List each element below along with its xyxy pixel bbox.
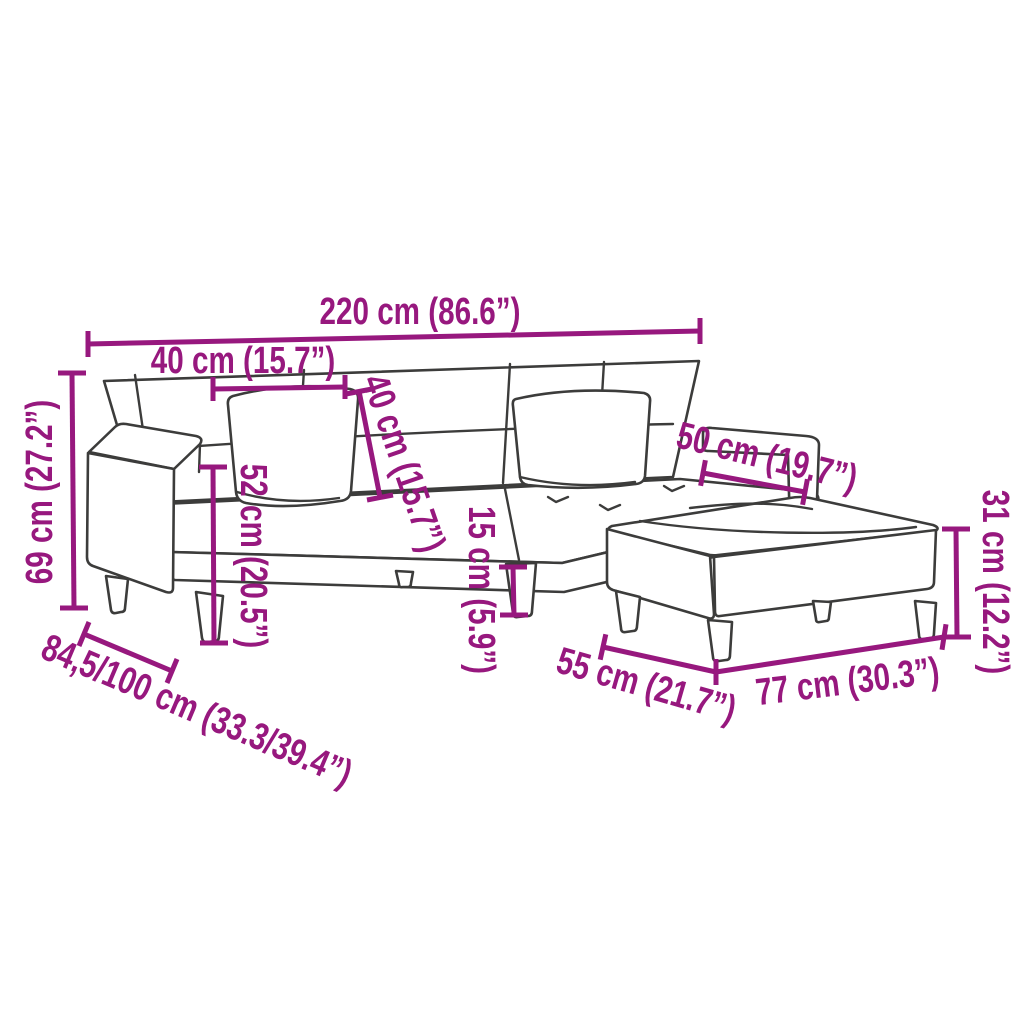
dimension-diagram: 220 cm (86.6”) 40 cm (15.7”) 40 cm (15.7… [0,0,1024,1024]
left-armrest-front-leg [196,592,223,642]
diagram-canvas: 220 cm (86.6”) 40 cm (15.7”) 40 cm (15.7… [0,0,1024,1024]
dimension-line [72,373,74,608]
dimension-depth-min-max: 84,5/100 cm (33.3/39.4”) [35,622,358,795]
dimension-label: 84,5/100 cm (33.3/39.4”) [35,626,358,795]
dimension-label: 15 cm (5.9”) [460,506,502,674]
dimension-overall-height: 69 cm (27.2”) [19,373,88,608]
dimension-label: 40 cm (15.7”) [151,340,335,382]
dimension-line [213,467,214,643]
back-cushion-right [513,391,650,488]
dimension-label: 52 cm (20.5”) [232,464,274,648]
footstool [607,497,938,661]
left-armrest-back-leg [106,576,128,613]
dimension-tick [942,624,946,650]
dimension-footstool-height: 31 cm (12.2”) [942,490,1016,674]
footstool-leg [915,601,936,639]
dimension-line [213,387,345,389]
dimension-line [513,567,514,615]
dimension-label: 31 cm (12.2”) [974,490,1016,674]
sofa-back-leg [396,571,413,587]
footstool-leg [813,601,831,622]
dimension-label: 220 cm (86.6”) [320,291,521,333]
footstool-leg [616,591,640,632]
dimension-label: 69 cm (27.2”) [19,400,61,584]
left-armrest-front [87,453,174,593]
dimension-line [956,529,957,637]
dimension-label: 77 cm (30.3”) [753,650,941,715]
dimension-footstool-width: 77 cm (30.3”) [716,624,946,714]
footstool-leg [708,620,732,661]
sofa-center-leg [506,563,536,617]
